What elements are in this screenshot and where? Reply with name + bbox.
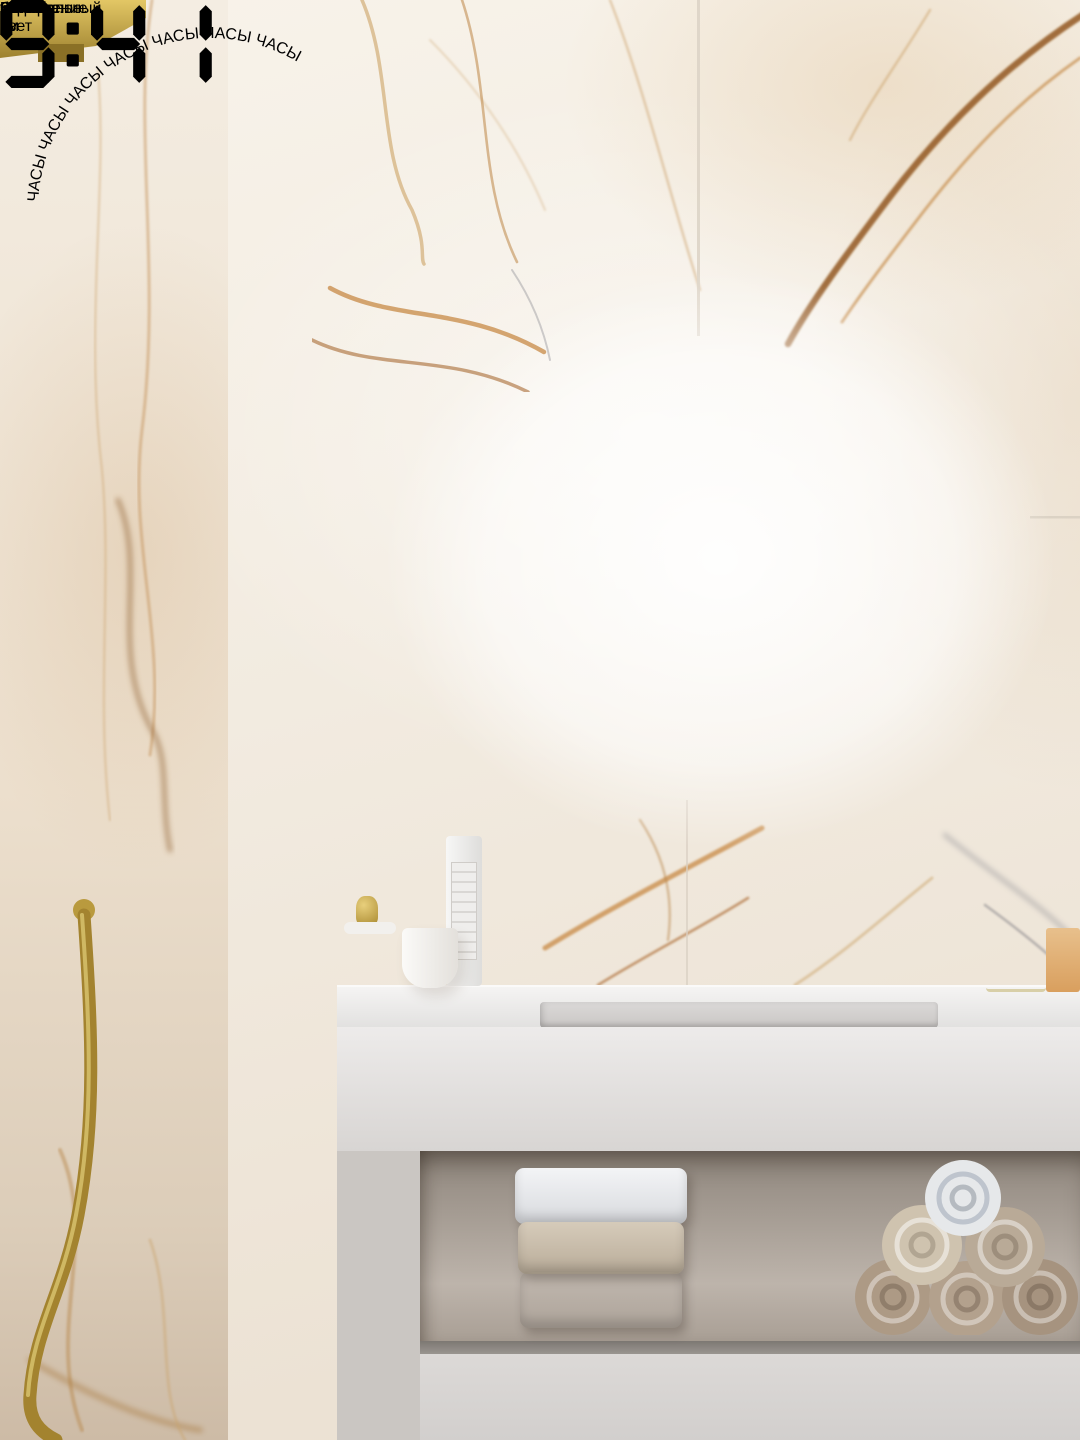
product-photo-scene: Высота: 60 см Ширина: 80 см Сенсорное уп… xyxy=(0,0,1080,1440)
cream-jar xyxy=(983,946,1049,992)
rolled-towels xyxy=(830,1150,1080,1335)
bottle-body xyxy=(903,834,963,988)
counter-front xyxy=(337,1027,1080,1151)
folded-towel-taupe xyxy=(520,1272,682,1328)
pump-spout xyxy=(941,794,957,802)
shower-hose xyxy=(0,880,220,1440)
perfume-bottle xyxy=(1046,906,1080,992)
soap-dispenser xyxy=(360,852,408,990)
drawer-gap xyxy=(420,1341,1080,1354)
gold-collar xyxy=(372,868,396,890)
jar-gold-lid xyxy=(983,946,1049,966)
ceramic-cup xyxy=(402,928,458,988)
bottle-body xyxy=(360,888,408,990)
watermark-clock xyxy=(0,0,212,88)
perfume-glass xyxy=(1046,928,1080,992)
pump-bottle-1 xyxy=(903,790,963,988)
vanity-side-panel xyxy=(337,1151,420,1440)
folded-towel-white xyxy=(515,1168,687,1224)
sink-basin xyxy=(540,1002,938,1028)
pump-spout xyxy=(1006,804,1022,812)
jar-body xyxy=(986,966,1046,992)
perfume-cap xyxy=(1052,906,1074,928)
vanity-drawer xyxy=(420,1354,1080,1440)
gold-band xyxy=(1040,776,1080,820)
folded-towel-beige xyxy=(518,1222,684,1274)
